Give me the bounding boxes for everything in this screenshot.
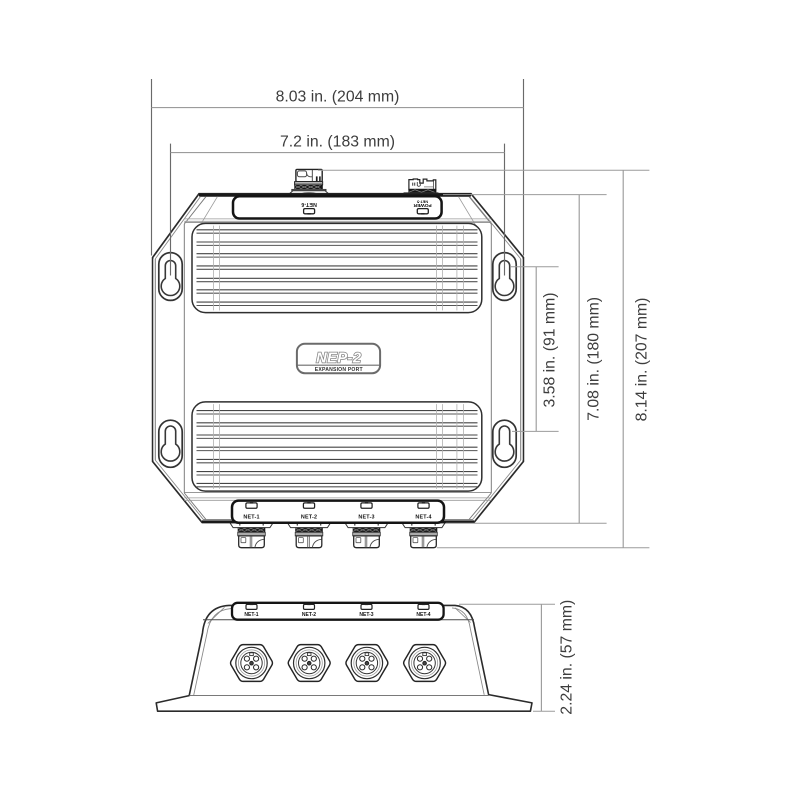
svg-text:NET-1: NET-1 bbox=[244, 612, 258, 618]
svg-text:NET-1: NET-1 bbox=[243, 514, 259, 520]
svg-text:3.58 in. (91 mm): 3.58 in. (91 mm) bbox=[541, 292, 558, 407]
svg-text:NET-2: NET-2 bbox=[301, 514, 317, 520]
svg-text:2.24 in. (57 mm): 2.24 in. (57 mm) bbox=[558, 600, 575, 715]
svg-text:NEP-2: NEP-2 bbox=[316, 350, 362, 366]
svg-text:NET-6: NET-6 bbox=[301, 201, 317, 207]
svg-text:NET-3: NET-3 bbox=[358, 514, 374, 520]
svg-text:POWER: POWER bbox=[413, 202, 432, 208]
svg-text:NET-4: NET-4 bbox=[415, 514, 431, 520]
svg-text:8.14 in. (207 mm): 8.14 in. (207 mm) bbox=[633, 298, 650, 422]
svg-text:7.2 in. (183 mm): 7.2 in. (183 mm) bbox=[280, 134, 395, 151]
svg-text:NET-4: NET-4 bbox=[416, 612, 430, 618]
svg-text:NET-3: NET-3 bbox=[359, 612, 373, 618]
svg-text:8.03 in. (204 mm): 8.03 in. (204 mm) bbox=[276, 89, 400, 106]
svg-text:NET-2: NET-2 bbox=[302, 612, 316, 618]
svg-text:EXPANSION PORT: EXPANSION PORT bbox=[315, 367, 364, 373]
svg-text:7.08 in. (180 mm): 7.08 in. (180 mm) bbox=[586, 297, 603, 421]
